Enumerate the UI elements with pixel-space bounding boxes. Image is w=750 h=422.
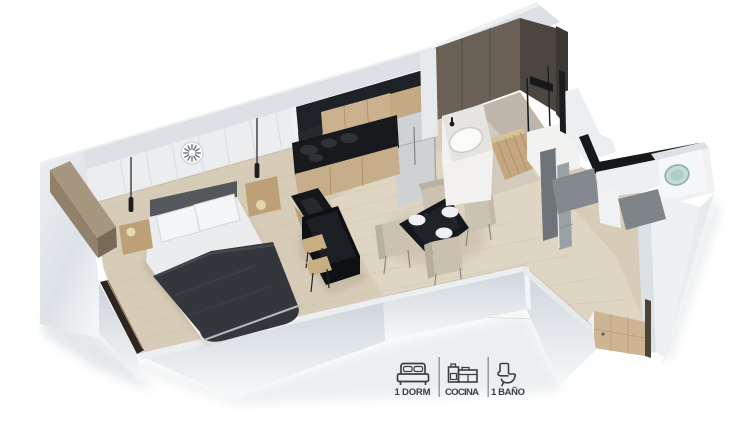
svg-text:1 DORM: 1 DORM [395,387,431,398]
svg-text:COCINA: COCINA [445,387,479,398]
svg-text:1 BAÑO: 1 BAÑO [491,387,525,398]
